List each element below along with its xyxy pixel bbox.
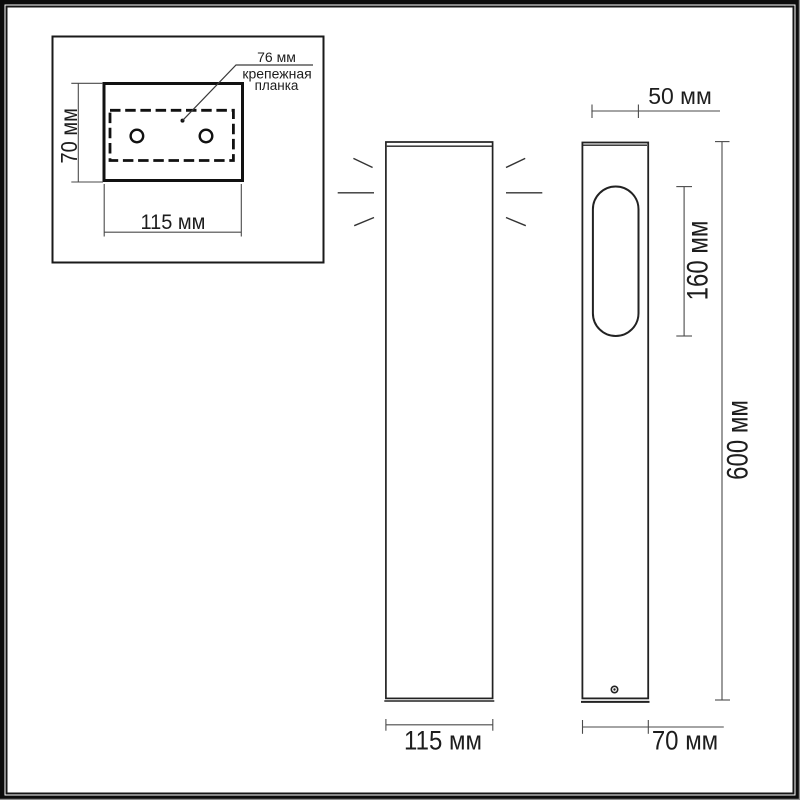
svg-text:70 мм: 70 мм <box>55 108 82 163</box>
svg-text:160 мм: 160 мм <box>681 221 714 301</box>
svg-text:50 мм: 50 мм <box>648 83 712 109</box>
svg-text:планка: планка <box>255 78 299 93</box>
svg-text:115 мм: 115 мм <box>404 727 482 756</box>
svg-text:600 мм: 600 мм <box>721 400 754 480</box>
svg-text:70 мм: 70 мм <box>652 727 718 756</box>
svg-text:115 мм: 115 мм <box>140 210 205 234</box>
svg-text:76 мм: 76 мм <box>257 49 296 65</box>
